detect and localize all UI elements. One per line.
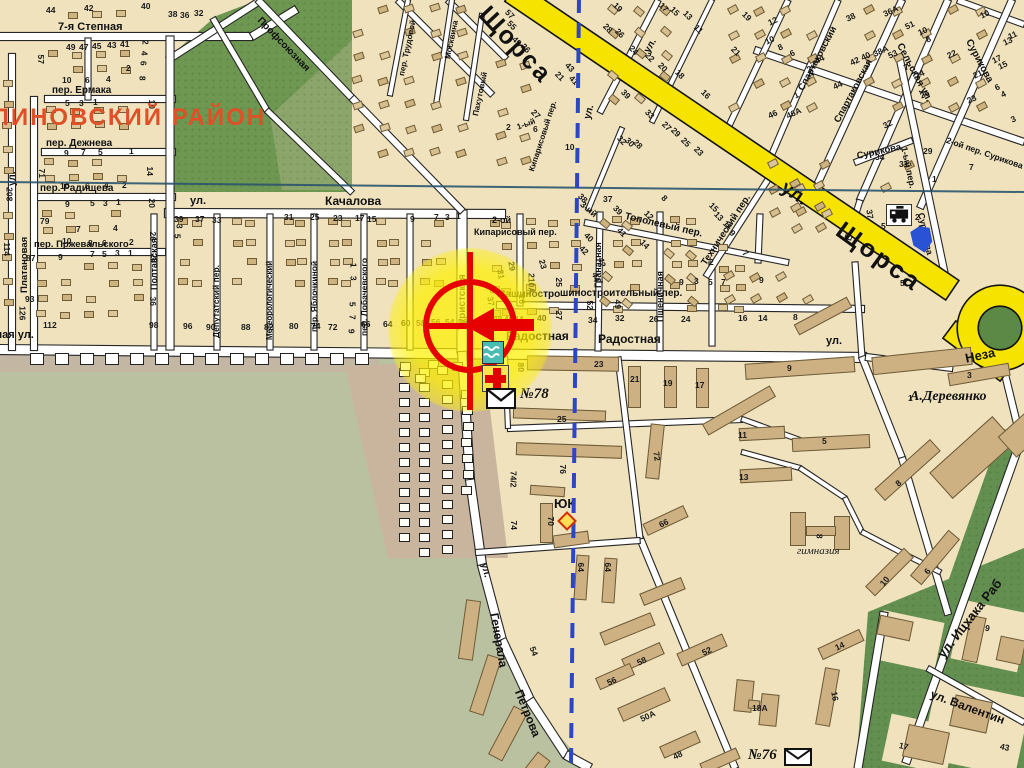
house-number: 20 — [656, 61, 669, 74]
house-number: 3 — [175, 224, 184, 229]
house — [60, 312, 70, 319]
house — [430, 29, 442, 39]
house-number: 4 — [113, 224, 118, 233]
house — [38, 295, 48, 302]
house — [389, 239, 399, 246]
house-number: 126 — [18, 306, 27, 320]
house — [863, 4, 875, 15]
building-slab — [790, 512, 806, 546]
house — [377, 5, 389, 15]
house-number: 3 — [349, 276, 358, 281]
house-number: 15 — [997, 59, 1009, 71]
house — [192, 280, 202, 287]
house — [776, 292, 788, 303]
house — [496, 157, 508, 167]
house-number: 71 — [37, 169, 46, 178]
house-number: 76 — [558, 465, 567, 474]
house — [864, 30, 876, 41]
house-number: 7 — [434, 213, 439, 222]
house-number: 38 — [168, 10, 177, 19]
house-number: 16 — [699, 88, 712, 101]
house — [232, 218, 242, 225]
map-label: пер. Пржевальского — [34, 240, 129, 250]
house — [495, 131, 507, 141]
house-number: 79 — [40, 217, 49, 226]
garage-square — [399, 413, 410, 422]
garage-square — [442, 440, 453, 449]
house-number: 64 — [603, 563, 612, 572]
house-number: 9 — [410, 215, 415, 224]
house-number: 5 — [90, 199, 95, 208]
map-label: А.Деревянко — [910, 390, 986, 404]
garage-square — [399, 458, 410, 467]
plot-square — [30, 353, 44, 365]
water-pool-icon — [482, 341, 504, 364]
house — [3, 146, 13, 153]
garage-square — [442, 425, 453, 434]
house — [92, 159, 102, 166]
house — [727, 4, 739, 15]
house-number: 2 — [126, 64, 131, 73]
house — [431, 124, 443, 134]
building-slab — [792, 434, 871, 452]
house — [671, 240, 681, 247]
house — [724, 294, 736, 305]
building-slab — [628, 366, 641, 408]
house — [734, 306, 744, 313]
house — [132, 264, 142, 271]
house-number: 14 — [758, 314, 767, 323]
house-number: 9 — [679, 278, 684, 287]
house — [352, 29, 364, 39]
house — [495, 59, 507, 69]
envelope-fold-glyph — [786, 750, 810, 764]
house — [429, 3, 441, 13]
map-label: ул. — [826, 336, 842, 347]
garage-square — [399, 503, 410, 512]
house — [116, 10, 126, 17]
house-number: 7 — [81, 148, 86, 157]
house — [947, 76, 959, 87]
house-number: 1 — [349, 263, 358, 268]
garage-square — [419, 533, 430, 542]
house — [65, 212, 75, 219]
house — [133, 279, 143, 286]
house — [92, 11, 102, 18]
city-map-canvas[interactable]: 4442403836324947454341257426810645311097… — [0, 0, 1024, 768]
house-number: 6 — [533, 125, 538, 134]
house — [390, 258, 400, 265]
house-number: 37 — [603, 195, 612, 204]
house — [48, 50, 58, 57]
house-number: 72 — [652, 451, 662, 462]
house — [613, 240, 623, 247]
house — [549, 241, 559, 248]
envelope-fold-glyph — [488, 390, 514, 407]
map-label: Гранатная — [594, 242, 603, 288]
house — [779, 5, 791, 16]
house — [247, 258, 257, 265]
garage-square — [442, 515, 453, 524]
house — [43, 227, 53, 234]
house-number: 49 — [66, 43, 75, 52]
house — [779, 77, 791, 88]
garage-square — [442, 410, 453, 419]
house — [330, 259, 340, 266]
map-label: Метеорологический — [266, 261, 274, 340]
house-number: 25 — [310, 213, 319, 222]
house-number: 1 — [932, 175, 937, 184]
house-number: 208 — [5, 187, 14, 201]
map-label: ЛИНОВСКИЙ РАЙОН — [0, 106, 266, 130]
house — [377, 77, 389, 87]
plot-square — [180, 353, 194, 365]
building-slab — [516, 442, 622, 459]
house — [753, 6, 765, 17]
house — [672, 261, 682, 268]
house-number: 5 — [822, 437, 827, 446]
house-number: 98 — [149, 321, 158, 330]
garage-square — [419, 428, 430, 437]
house — [69, 174, 79, 181]
post-envelope-icon — [784, 748, 812, 766]
house — [421, 240, 431, 247]
street-segment — [799, 466, 846, 499]
house — [232, 278, 242, 285]
map-label: ул. — [583, 104, 596, 121]
house — [84, 263, 94, 270]
house-number: 6 — [85, 76, 90, 85]
map-label: Качалова — [325, 195, 381, 207]
house-number: 5 — [348, 302, 357, 307]
house — [455, 149, 467, 159]
red-cross-hbar — [485, 375, 506, 383]
street-segment — [167, 36, 174, 349]
house-number: 36 — [148, 297, 157, 306]
garage-square — [399, 488, 410, 497]
house — [68, 160, 78, 167]
house-number: 29 — [923, 147, 932, 156]
house — [109, 280, 119, 287]
map-label: №76 — [748, 748, 777, 763]
house-number: 16 — [738, 314, 747, 323]
house — [527, 242, 537, 249]
house-number: 16 — [830, 691, 840, 702]
house-number: 3 — [694, 277, 699, 286]
house-number: 9 — [787, 364, 792, 373]
house-number: 37 — [195, 215, 204, 224]
house — [296, 239, 306, 246]
house-number: 74 — [509, 521, 518, 530]
house-number: 39 — [619, 88, 632, 101]
house-number: 31 — [284, 213, 293, 222]
house-number: 3 — [445, 213, 450, 222]
house — [633, 6, 645, 18]
house-number: 8 — [815, 534, 824, 539]
map-label: Платановая — [20, 237, 30, 293]
garage-square — [442, 485, 453, 494]
house-number: 43 — [563, 61, 576, 74]
plot-square — [355, 353, 369, 365]
house — [351, 75, 363, 85]
house-number: 2 — [506, 123, 511, 132]
house — [376, 218, 386, 225]
house-number: 21 — [553, 70, 566, 83]
house-number: 8 — [660, 194, 669, 203]
garage-square — [442, 500, 453, 509]
map-label: 2-ой — [492, 216, 511, 225]
house-number: 114 — [3, 242, 12, 256]
house-number: 5 — [98, 148, 103, 157]
house-number: 6 — [139, 61, 148, 66]
target-marker-arrow-shaft — [492, 319, 534, 331]
house — [663, 248, 675, 260]
house-number: 7 — [348, 315, 357, 320]
garage-square — [442, 470, 453, 479]
house-number: 23 — [966, 93, 978, 105]
house-number: 2 — [141, 40, 150, 45]
house-number: 7 — [721, 278, 726, 287]
building-slab — [599, 612, 655, 646]
house-number: 3 — [967, 371, 972, 380]
street-segment — [42, 149, 175, 155]
house — [328, 278, 338, 285]
house-number: 32 — [615, 314, 624, 323]
garage-square — [462, 454, 473, 463]
house-number: 14 — [145, 167, 154, 176]
house — [976, 101, 988, 112]
house — [457, 51, 469, 61]
house-number: 5 — [173, 234, 182, 239]
house-number: 44 — [46, 6, 55, 15]
house — [3, 80, 13, 87]
house — [404, 99, 416, 109]
house-number: 2 — [129, 238, 134, 247]
house-number: 25 — [557, 415, 566, 424]
house — [388, 280, 398, 287]
house — [97, 65, 107, 72]
house — [403, 76, 415, 86]
house-number: 19 — [740, 10, 753, 23]
house — [93, 173, 103, 180]
house — [111, 210, 121, 217]
house — [341, 220, 351, 227]
house-number: 41 — [120, 40, 129, 49]
house — [4, 299, 14, 306]
house-number: 70 — [546, 517, 555, 526]
plot-square — [280, 353, 294, 365]
house-number: 10 — [565, 143, 574, 152]
house — [295, 220, 305, 227]
house — [632, 260, 642, 267]
house-number: 37 — [865, 209, 875, 220]
garage-square — [463, 470, 474, 479]
house — [769, 207, 781, 218]
house — [120, 50, 130, 57]
house-number: 40 — [141, 2, 150, 11]
house-number: 43 — [999, 742, 1010, 752]
house — [750, 293, 762, 304]
house-number: 8 — [138, 76, 147, 81]
house — [728, 30, 740, 41]
house-number: 11 — [738, 431, 747, 440]
map-label: пер. Радищева — [40, 184, 113, 194]
house — [377, 149, 389, 159]
garage-square — [399, 398, 410, 407]
house — [379, 51, 391, 61]
garage-square — [419, 413, 430, 422]
house-number: 51 — [904, 19, 916, 31]
house — [86, 296, 96, 303]
house-number: 13 — [681, 9, 694, 22]
house-number: 18А — [752, 704, 768, 713]
street-segment — [720, 0, 791, 141]
house — [378, 259, 388, 266]
bus-glyph — [887, 205, 911, 225]
house-number: 33 — [212, 216, 221, 225]
map-label: Кипарисовый пер. — [474, 228, 557, 237]
house — [688, 260, 698, 267]
house-number: 27 — [554, 311, 563, 320]
house — [780, 28, 792, 39]
house-number: 8 — [776, 42, 784, 52]
house-number: 5 — [708, 278, 713, 287]
map-label: пер. Яблочкиной — [310, 261, 319, 332]
house — [286, 259, 296, 266]
house-number: 1 — [128, 249, 133, 258]
map-label: ул. — [190, 196, 206, 207]
house-number: 19 — [663, 379, 672, 388]
map-label: гимназия — [797, 546, 840, 557]
plot-square — [205, 353, 219, 365]
map-label: шиностроительный пер. — [560, 289, 682, 299]
house-number: 9 — [58, 253, 63, 262]
house-number: 43 — [107, 41, 116, 50]
house — [791, 223, 803, 234]
house — [430, 101, 442, 111]
house-number: 1 — [116, 198, 121, 207]
house — [44, 158, 54, 165]
house — [3, 212, 13, 219]
house — [802, 294, 814, 305]
garage-square — [461, 486, 472, 495]
house-number: 80 — [289, 322, 298, 331]
garage-square — [461, 438, 472, 447]
house-number: 74/2 — [509, 471, 518, 488]
house — [66, 226, 76, 233]
house-number: 93 — [25, 295, 34, 304]
house-number: 1 — [129, 147, 134, 156]
house-number: 23 — [692, 145, 705, 158]
map-label: пер. Лобачевского — [360, 258, 369, 336]
house — [73, 66, 83, 73]
house-number: 25 — [679, 136, 692, 149]
house-number: 23 — [594, 360, 603, 369]
house-number: 48 — [672, 749, 684, 761]
house-number: 15 — [367, 215, 376, 224]
house-number: 3 — [1009, 114, 1017, 124]
house-number: 13 — [739, 473, 748, 482]
house — [295, 280, 305, 287]
house — [376, 278, 386, 285]
house-number: 4 — [140, 51, 149, 56]
plot-square — [80, 353, 94, 365]
house-number: 38 — [845, 11, 857, 23]
house-number: 45 — [92, 42, 101, 51]
house — [4, 233, 14, 240]
house — [342, 239, 352, 246]
house — [405, 125, 417, 135]
plot-square — [230, 353, 244, 365]
garage-square — [442, 545, 453, 554]
house-number: 47 — [79, 43, 88, 52]
house-number: 8 — [793, 313, 798, 322]
house-number: 9 — [64, 149, 69, 158]
house — [429, 147, 441, 157]
house-number: 17 — [695, 381, 704, 390]
house-number: 88 — [241, 323, 250, 332]
house — [736, 284, 746, 291]
house-number: 25 — [554, 278, 563, 287]
house — [548, 220, 558, 227]
house — [193, 239, 203, 246]
plot-square — [255, 353, 269, 365]
house-number: 57 — [36, 55, 45, 64]
house-number: 1 — [456, 212, 461, 221]
house-number: 10 — [764, 34, 776, 46]
house — [455, 77, 467, 87]
street-segment — [957, 0, 1024, 26]
house-number: 96 — [183, 322, 192, 331]
house-number: 64 — [576, 563, 585, 572]
house — [36, 262, 46, 269]
house-number: 4 — [999, 89, 1007, 99]
house — [622, 245, 634, 257]
house — [806, 102, 818, 113]
house-number: 23 — [537, 259, 548, 270]
house-number: 52 — [585, 301, 594, 310]
house-number: 20 — [147, 199, 156, 208]
house-number: 3 — [115, 249, 120, 258]
house — [341, 280, 351, 287]
garage-square — [399, 533, 410, 542]
house — [353, 124, 365, 134]
house — [353, 52, 365, 62]
house — [134, 294, 144, 301]
house — [806, 30, 818, 41]
map-label: Депутатский пер. — [212, 265, 221, 338]
house — [180, 259, 190, 266]
garage-square — [399, 473, 410, 482]
building-slab — [996, 636, 1024, 666]
house — [502, 243, 512, 250]
house-number: 32 — [194, 9, 203, 18]
house — [608, 94, 620, 106]
house-number: 7 — [90, 250, 95, 259]
house — [614, 261, 624, 268]
house-number: 7 — [969, 163, 974, 172]
garage-square — [419, 443, 430, 452]
house-number: 34 — [588, 316, 597, 325]
building-slab — [573, 555, 589, 601]
house — [246, 239, 256, 246]
house-number: 3 — [103, 199, 108, 208]
house-number: 9 — [65, 200, 70, 209]
house-number: 42 — [849, 55, 861, 67]
house — [526, 218, 536, 225]
house — [233, 240, 243, 247]
garage-square — [419, 548, 430, 557]
